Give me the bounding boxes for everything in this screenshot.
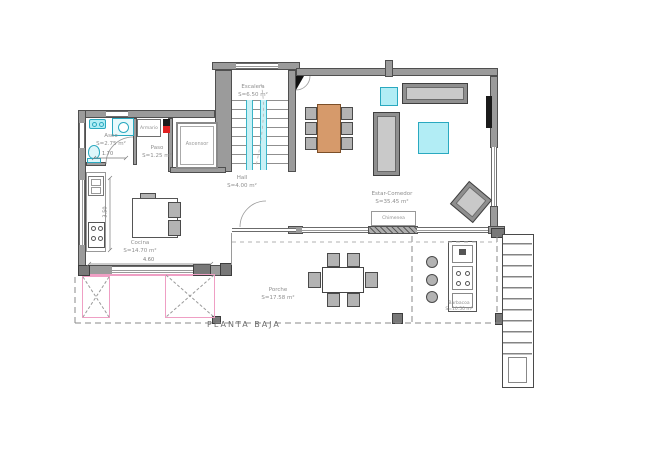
room-area: S=10.50 m² [445, 307, 472, 313]
utility-marker-black [163, 119, 170, 126]
plan-title: PLANTA BAJA [207, 320, 281, 329]
room-area: S=4.00 m² [227, 183, 257, 191]
slider-hall [232, 228, 296, 232]
burner [98, 226, 103, 231]
side-table-cyan [380, 87, 398, 106]
porch-chair [347, 253, 360, 267]
room-name: Estar-Comedor [372, 191, 413, 199]
room-label-cocina: Cocina S=14.70 m² [123, 240, 156, 255]
dining-chair [305, 137, 317, 150]
stair-top-window [236, 63, 278, 69]
room-name: Escalera [238, 84, 268, 92]
window-mullion [236, 66, 278, 67]
window-mullion [112, 272, 193, 273]
room-label-paso: Paso S=1.25 m² [142, 145, 172, 160]
bar-stool [426, 274, 438, 286]
room-label-porche: Porche S=17.58 m² [261, 287, 294, 302]
toilet-tank [87, 158, 101, 163]
bbq-grill [452, 266, 473, 290]
fireplace-box: Chimenea [371, 211, 416, 226]
vent-pipe [385, 60, 393, 77]
rug-cyan [418, 122, 449, 154]
room-label-estar-comedor: Estar-Comedor S=35.45 m² [372, 191, 413, 206]
stair-cyan-stripe [246, 100, 253, 170]
sofa-vertical [373, 112, 400, 176]
slider-door-right [417, 227, 489, 233]
room-label-aseo: Aseo S=2.75 m² [96, 133, 126, 148]
room-area: S=2.75 m² [96, 141, 126, 149]
fireplace-wall [368, 226, 418, 234]
dining-chair [341, 122, 353, 135]
room-name: Cocina [123, 240, 156, 248]
sofa-cushion [406, 87, 464, 100]
room-label-chimenea: Chimenea [382, 216, 405, 221]
kitchen-sink [88, 176, 104, 196]
tv [486, 96, 492, 128]
dining-chair [341, 137, 353, 150]
stove [88, 222, 105, 248]
stairs-lower-landing [508, 357, 527, 383]
island-stool [168, 220, 181, 236]
room-area: S=17.58 m² [261, 295, 294, 303]
burner [91, 236, 96, 241]
room-area: S=14.70 m² [123, 248, 156, 256]
bar-stool [426, 256, 438, 268]
entry-door-leaf [296, 76, 304, 90]
right-wall-window [491, 147, 497, 207]
dimension-aseo-width: 1.70 [102, 151, 113, 157]
bbq-faucet [459, 249, 466, 255]
room-name: Ascensor [186, 141, 209, 148]
burner [465, 271, 470, 276]
window-mullion [417, 230, 489, 231]
sink-bowl [91, 179, 101, 186]
burner [456, 281, 461, 286]
window-mullion [302, 230, 369, 231]
window-mullion [494, 147, 495, 207]
exterior-stairs-treads [503, 243, 532, 363]
bar-stool [426, 291, 438, 303]
room-area: S=6.50 m² [238, 92, 268, 100]
room-name: Paso [142, 145, 172, 153]
porch-column [392, 313, 403, 324]
wall-top [296, 68, 498, 76]
window-mullion [112, 270, 193, 271]
kitchen-side-window [79, 180, 85, 245]
dining-chair [305, 122, 317, 135]
dining-table [317, 104, 341, 153]
sofa-horizontal [402, 83, 468, 104]
basin-bowl [92, 122, 97, 127]
burner [91, 226, 96, 231]
planter [82, 276, 110, 318]
aseo-top-window [106, 111, 128, 117]
sink-bowl [91, 187, 101, 194]
wall-stair-right [288, 70, 296, 172]
armchair [450, 181, 492, 223]
room-label-hall: Hall S=4.00 m² [227, 175, 257, 190]
room-name: Hall [227, 175, 257, 183]
washbasin [89, 119, 106, 129]
burner [465, 281, 470, 286]
porch-chair [327, 293, 340, 307]
exterior-stairs [502, 234, 534, 388]
bbq-sink [452, 245, 473, 263]
armchair-cushion [456, 187, 487, 218]
porch-table [322, 267, 364, 293]
room-label-armario: Armario [140, 126, 158, 131]
dining-chair [305, 107, 317, 120]
slider-door-left [302, 227, 369, 233]
island-stool [168, 202, 181, 218]
porch-chair [347, 293, 360, 307]
stair-cyan-stripe [260, 100, 267, 170]
washing-machine-door [118, 122, 129, 133]
floor-plan: Chimenea [0, 0, 650, 450]
burner [456, 271, 461, 276]
burner [98, 236, 103, 241]
room-area: S=35.45 m² [372, 199, 413, 207]
sofa-cushion [377, 116, 396, 172]
room-label-barbacoa: Barbacoa S=10.50 m² [445, 301, 472, 314]
dining-chair [341, 107, 353, 120]
porch-chair [308, 272, 321, 288]
utility-marker-red [163, 126, 170, 133]
window-mullion [82, 180, 83, 245]
room-name: Porche [261, 287, 294, 295]
room-area: S=1.25 m² [142, 153, 172, 161]
room-label-ascensor: Ascensor [186, 141, 209, 148]
wall-left-block-top [78, 110, 215, 118]
glass-kitchen-porch [231, 233, 232, 265]
porch-chair [365, 272, 378, 288]
dimension-cocina-depth: 3.50 [103, 206, 109, 217]
room-label-escalera: Escalera S=6.50 m² [238, 84, 268, 99]
porch-chair [327, 253, 340, 267]
dimension-cocina-width: 4.60 [143, 257, 154, 263]
basin-bowl [99, 122, 104, 127]
column [78, 265, 90, 276]
aseo-side-window [79, 123, 85, 148]
room-name: Aseo [96, 133, 126, 141]
planter [165, 274, 215, 318]
